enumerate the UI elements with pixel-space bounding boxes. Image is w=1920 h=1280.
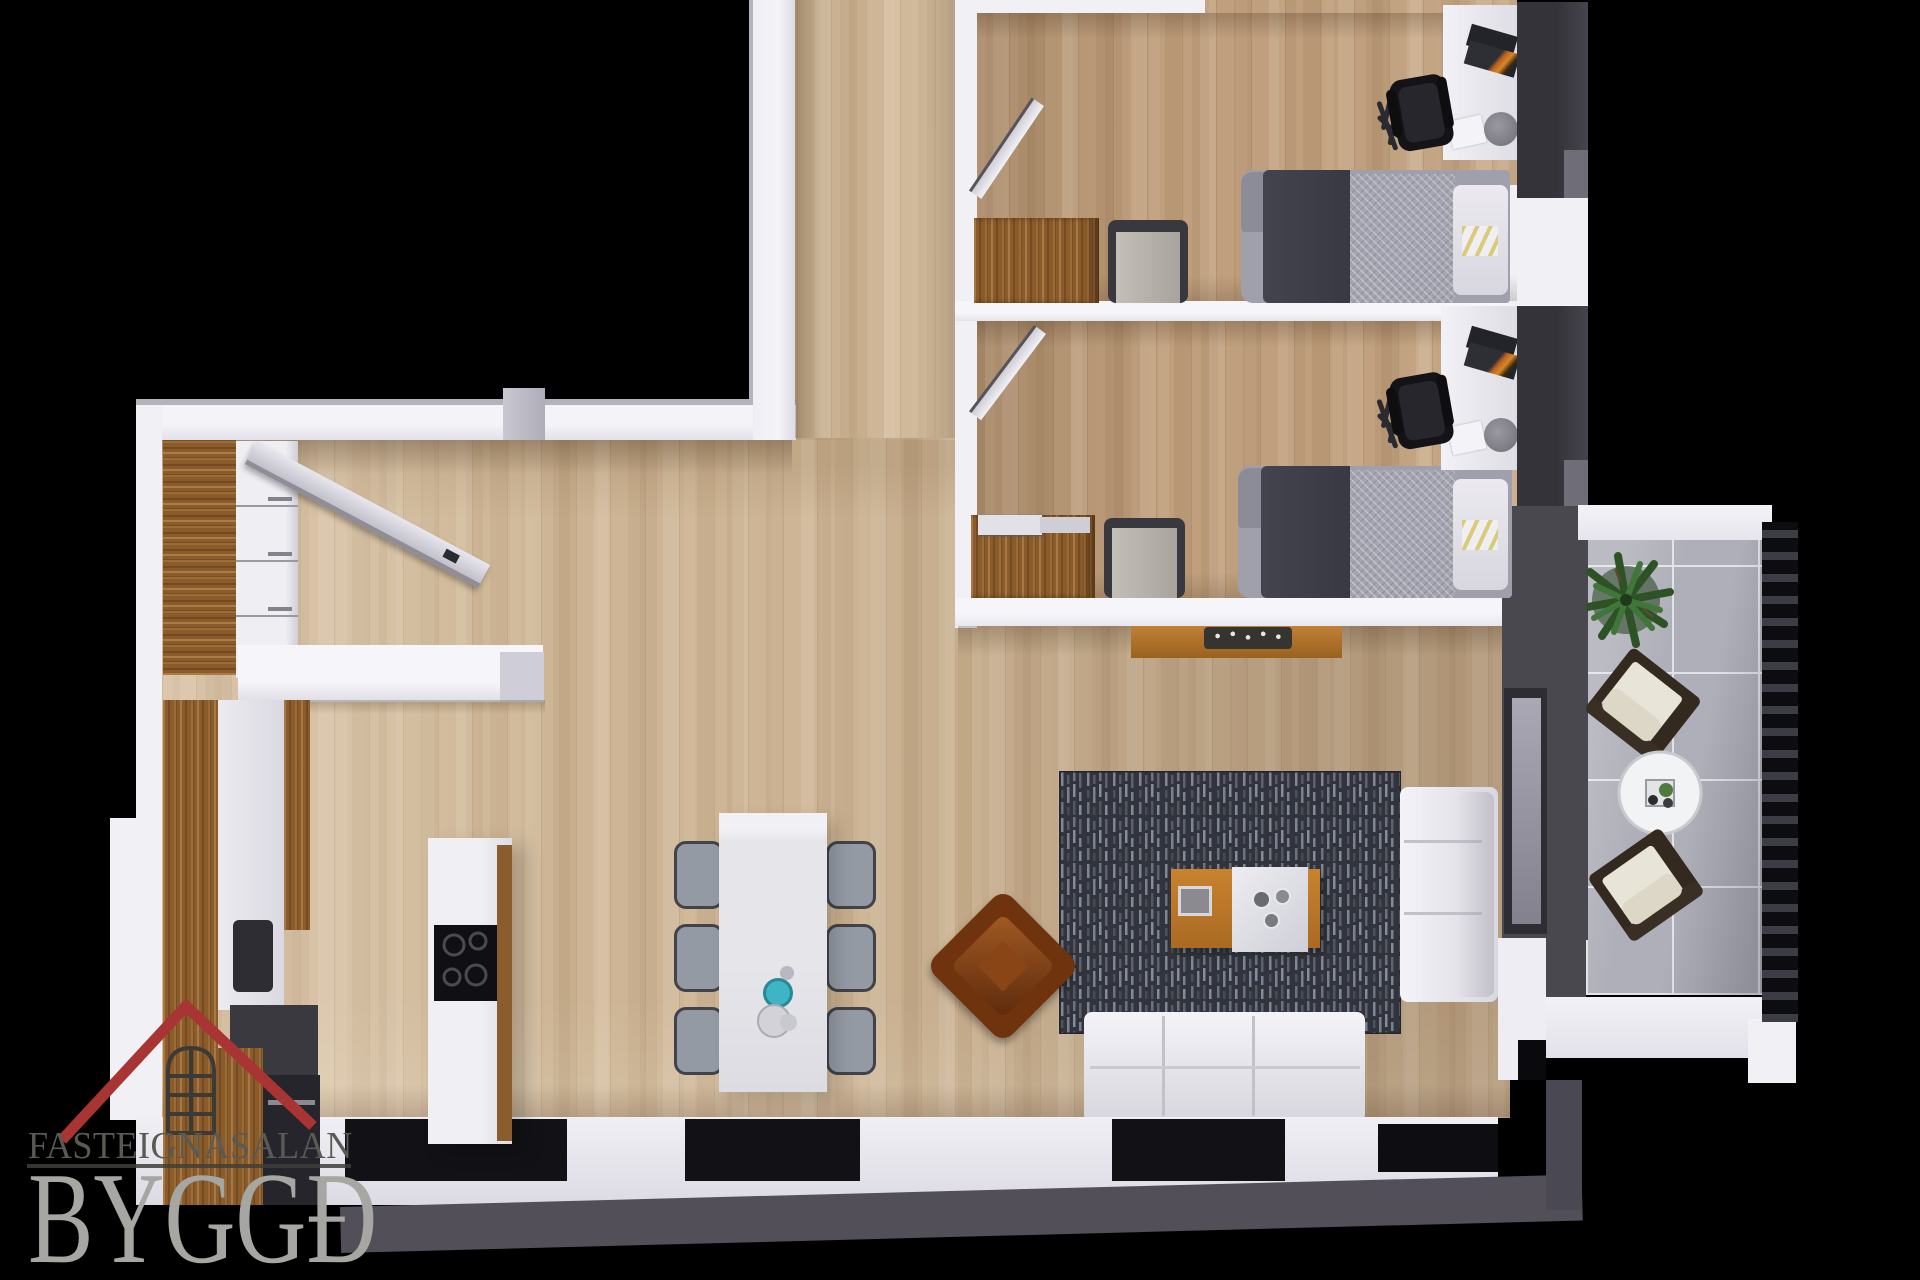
svg-text:BYGGÐ: BYGGÐ (28, 1147, 377, 1280)
